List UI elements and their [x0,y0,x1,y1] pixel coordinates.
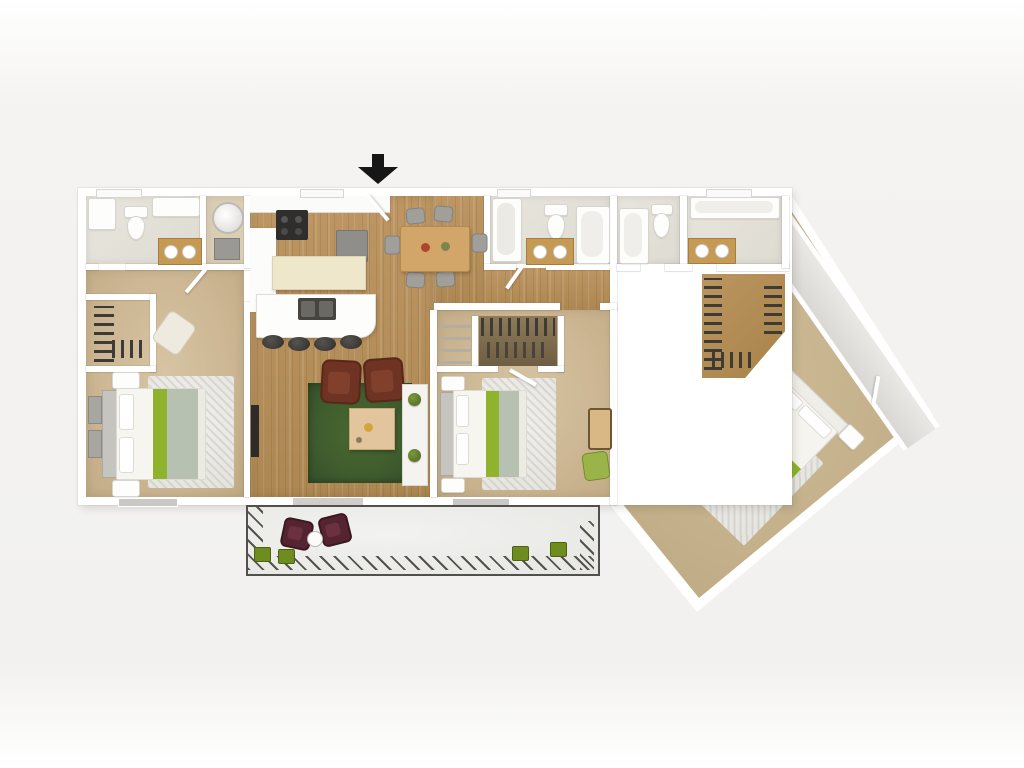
bathtub [576,206,610,264]
utility-unit [214,238,240,260]
toilet [544,204,566,240]
bar-stool [262,335,284,349]
washer [212,202,244,234]
bar-stool [314,337,336,351]
plant-shelf [402,384,428,486]
dining-chair [472,234,488,253]
closet-1 [92,300,150,366]
nightstand [441,478,465,493]
window [706,189,752,198]
planter [512,546,529,561]
shower [492,198,522,262]
patio [246,505,600,576]
tv [251,405,259,457]
bedroom2-bench [588,408,612,450]
dining-chair [385,236,401,255]
potted-plant [408,393,421,406]
bedroom2-bed [453,390,527,478]
dresser [88,396,102,424]
bar-stool [288,337,310,351]
kitchen-sink [298,298,336,320]
bed-green-runner [486,391,499,477]
planter [278,549,295,564]
bath1-vanity [158,238,202,265]
nightstand [441,376,465,391]
nightstand [112,480,140,497]
armchair [363,357,406,404]
potted-plant [408,449,421,462]
closet-clothes-rack [764,286,782,334]
coffee-table [349,408,395,450]
dining-chair [433,205,453,223]
nightstand [112,372,140,389]
bath1-counter [152,197,200,217]
toilet [124,206,146,240]
bed-green-runner [153,389,167,479]
bath2-vanity [526,238,574,265]
bed-blanket [167,389,198,479]
bathtub [619,208,649,264]
range-stove [276,210,308,240]
toilet [651,204,671,240]
dining-chair [435,270,455,288]
bed-blanket [499,391,519,477]
closet-clothes-rack [712,352,756,368]
planter [254,547,271,562]
bedroom2-shelf-closet [441,318,471,364]
patio-table [307,531,323,547]
entry-arrow-icon [358,154,398,186]
bedroom2-walkin-closet [479,316,557,366]
floorplan-stage [0,0,1024,768]
bar-stool [340,335,362,349]
bedroom2-green-chair [581,450,611,481]
armchair [320,359,362,405]
patio-chair [317,512,353,548]
patio-hatch-bottom [248,556,594,570]
patio-hatch-right [580,521,594,570]
window [300,189,344,198]
bedroom1-bed [116,388,206,480]
window [497,189,531,198]
dining-table [400,226,470,272]
master-vanity [688,238,736,264]
dining-chair [405,271,425,288]
shower [88,198,116,230]
planter [550,542,567,557]
window [118,498,178,507]
window [96,189,142,198]
dresser [88,430,102,458]
kitchen-island [272,256,366,290]
bathtub [690,197,780,219]
dining-chair [405,207,426,225]
